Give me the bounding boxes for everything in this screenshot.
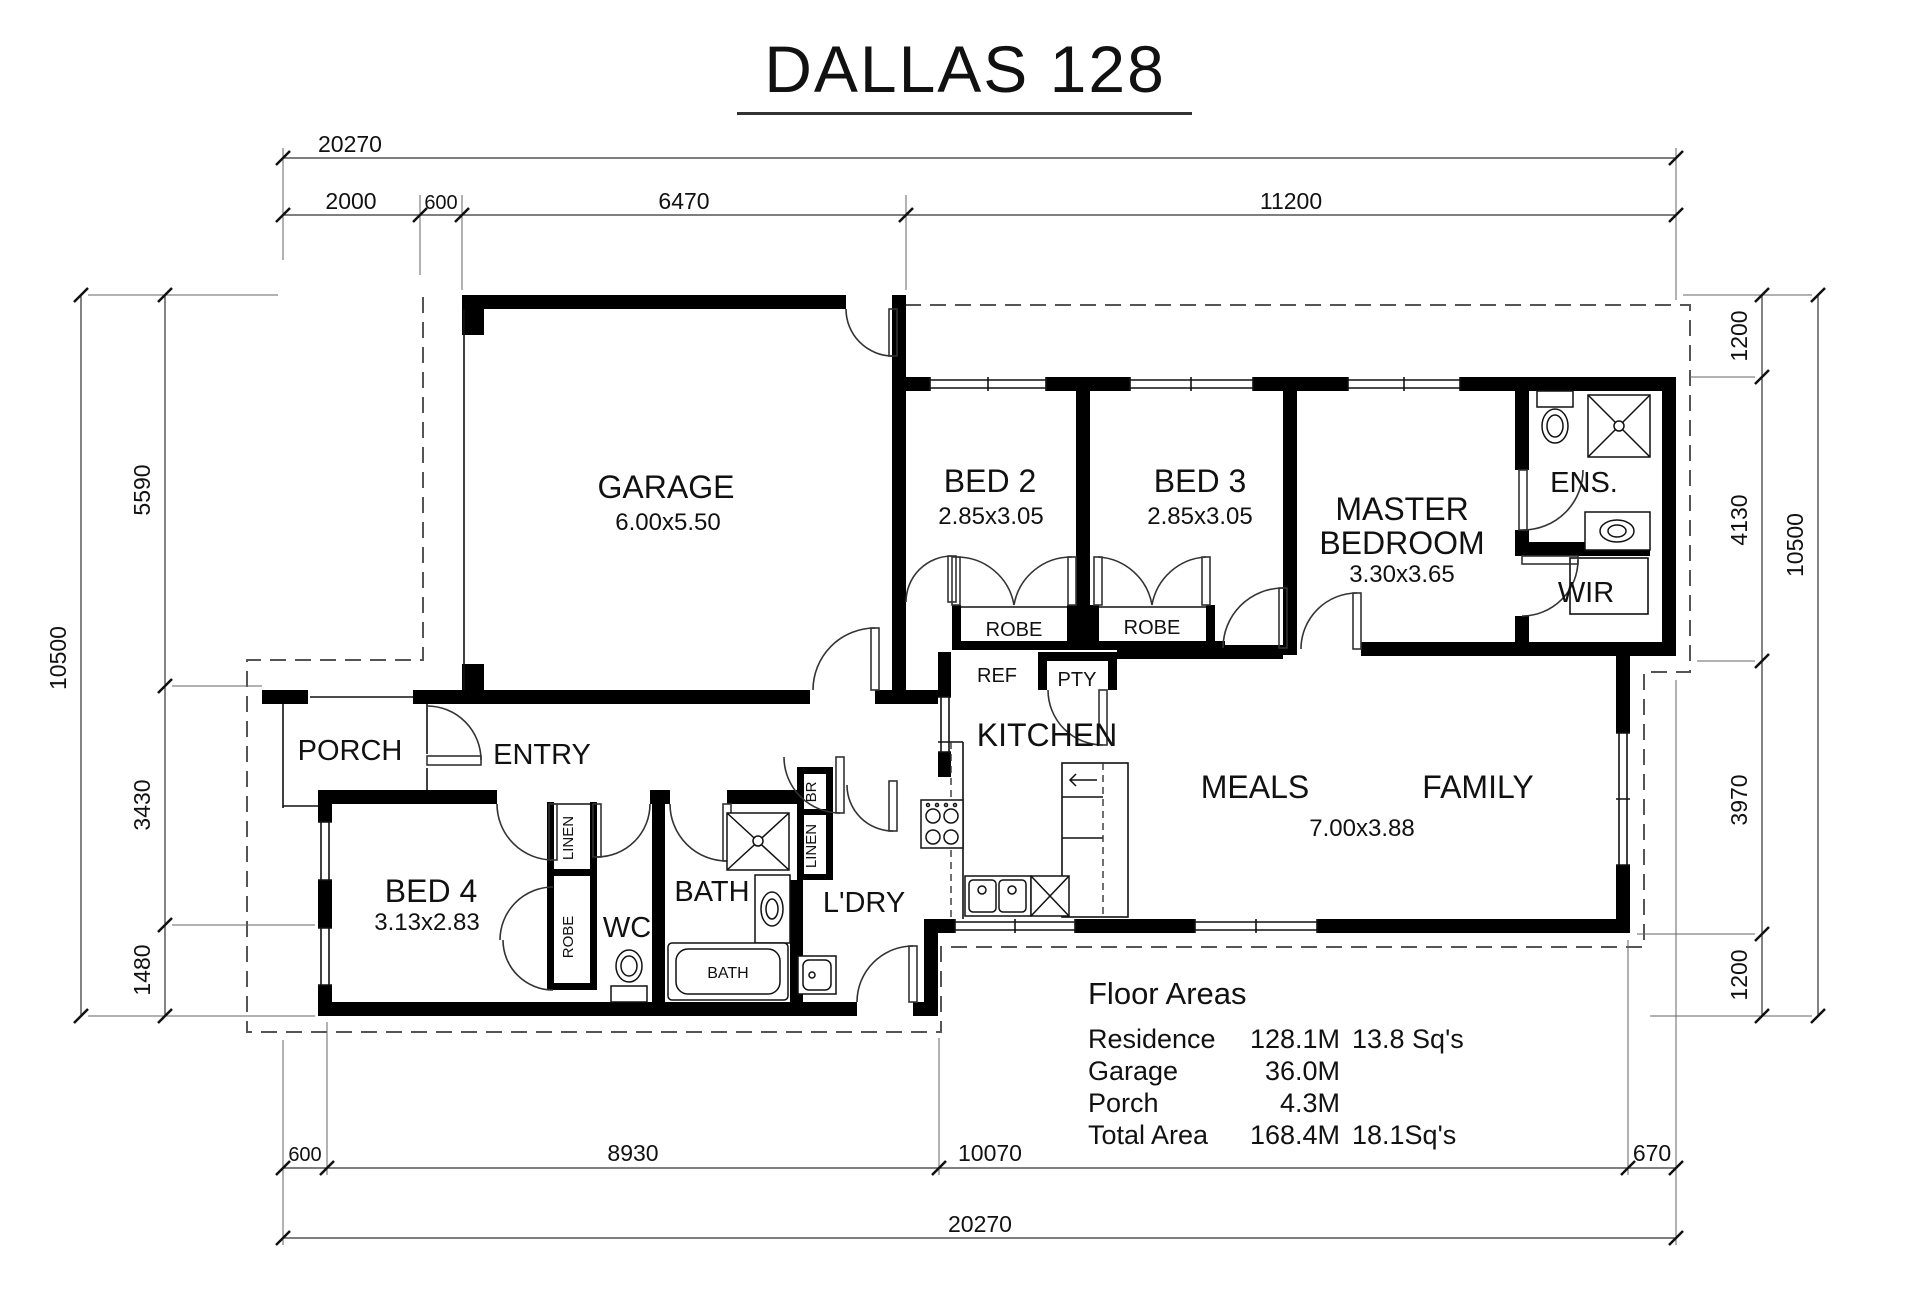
- dim-top-seg-6470: 6470: [658, 188, 709, 214]
- dimension-labels: 20270 2000 600 6470 11200 600 8930 10070…: [45, 131, 1808, 1237]
- kitchen-sink-icon: [965, 876, 1069, 916]
- room-label-kitchen: KITCHEN: [977, 717, 1117, 753]
- dim-bottom-seg-8930: 8930: [607, 1140, 658, 1166]
- floor-areas-row0-extra: 13.8 Sq's: [1352, 1024, 1464, 1054]
- label-robe-bed2: ROBE: [986, 619, 1043, 641]
- dim-right-seg-1200b: 1200: [1726, 949, 1752, 1000]
- ens-vanity-icon: [1585, 512, 1650, 550]
- dim-bottom-seg-10070: 10070: [958, 1140, 1022, 1166]
- label-robe-bed4: ROBE: [560, 916, 577, 959]
- label-robe-bed3: ROBE: [1124, 617, 1181, 639]
- room-label-meals: MEALS: [1201, 769, 1309, 805]
- floor-areas-row3-value: 168.4M: [1250, 1120, 1340, 1150]
- cooktop-icon: [921, 800, 963, 848]
- bath-vanity-icon: [755, 875, 790, 943]
- thin-outlines: [283, 309, 1648, 919]
- dim-right-seg-1200a: 1200: [1726, 310, 1752, 361]
- title-underline: [737, 112, 1192, 115]
- dim-right-seg-4130: 4130: [1726, 494, 1752, 545]
- dim-left-seg-1480: 1480: [129, 944, 155, 995]
- drawing-title: DALLAS 128: [764, 32, 1166, 106]
- floor-areas-row3-label: Total Area: [1088, 1120, 1209, 1150]
- floor-areas-row1-value: 36.0M: [1265, 1056, 1340, 1086]
- room-label-porch: PORCH: [298, 735, 403, 767]
- ens-shower-icon: [1588, 395, 1650, 457]
- dim-left-seg-5590: 5590: [129, 464, 155, 515]
- room-size-garage: 6.00x5.50: [615, 509, 720, 536]
- dim-bottom-seg-670: 670: [1633, 1140, 1671, 1166]
- wc-toilet-icon: [611, 950, 647, 1002]
- room-label-garage: GARAGE: [598, 469, 735, 505]
- dim-top-seg-600: 600: [424, 192, 457, 214]
- floor-areas-row2-value: 4.3M: [1280, 1088, 1340, 1118]
- dim-right-seg-3970: 3970: [1726, 774, 1752, 825]
- label-pty: PTY: [1058, 669, 1097, 691]
- dim-left-seg-3430: 3430: [129, 779, 155, 830]
- dim-bottom-seg-600: 600: [288, 1144, 321, 1166]
- floor-areas-row2-label: Porch: [1088, 1088, 1159, 1118]
- label-linen-ldry: LINEN: [803, 824, 820, 868]
- room-label-bed3: BED 3: [1154, 463, 1246, 499]
- label-br: BR: [803, 781, 820, 802]
- dim-left-overall: 10500: [45, 626, 71, 690]
- room-size-bed3: 2.85x3.05: [1147, 503, 1252, 530]
- floor-areas: Floor Areas Residence 128.1M 13.8 Sq's G…: [1088, 976, 1464, 1150]
- floor-areas-row0-label: Residence: [1088, 1024, 1216, 1054]
- dim-bottom-overall: 20270: [948, 1211, 1012, 1237]
- dim-top-seg-11200: 11200: [1260, 188, 1322, 214]
- room-label-family: FAMILY: [1422, 769, 1533, 805]
- floor-areas-row0-value: 128.1M: [1250, 1024, 1340, 1054]
- floor-areas-row1-label: Garage: [1088, 1056, 1178, 1086]
- floor-areas-heading: Floor Areas: [1088, 976, 1247, 1011]
- room-label-ldry: L'DRY: [823, 887, 905, 919]
- label-ref: REF: [977, 665, 1017, 687]
- room-label-entry: ENTRY: [493, 739, 591, 771]
- label-bathtub: BATH: [707, 965, 748, 982]
- room-label-master-2: BEDROOM: [1319, 525, 1484, 561]
- label-linen-hall: LINEN: [560, 816, 577, 860]
- room-label-bed4: BED 4: [385, 873, 477, 909]
- room-label-bath: BATH: [674, 876, 749, 908]
- room-label-wir: WIR: [1558, 577, 1614, 609]
- ens-toilet-icon: [1537, 391, 1573, 443]
- room-label-master-1: MASTER: [1335, 491, 1468, 527]
- floor-areas-row3-extra: 18.1Sq's: [1352, 1120, 1456, 1150]
- dishwasher-arrow-icon: [1070, 774, 1097, 786]
- room-label-bed2: BED 2: [944, 463, 1036, 499]
- floor-plan-canvas: DALLAS 128: [0, 0, 1920, 1311]
- laundry-tub-icon: [798, 956, 836, 994]
- bath-shower-icon: [727, 813, 789, 870]
- room-size-bed4: 3.13x2.83: [374, 909, 479, 936]
- dim-right-overall: 10500: [1782, 513, 1808, 577]
- room-size-meals-family: 7.00x3.88: [1309, 815, 1414, 842]
- dim-top-seg-2000: 2000: [325, 188, 376, 214]
- room-size-bed2: 2.85x3.05: [938, 503, 1043, 530]
- room-label-ens: ENS.: [1550, 467, 1618, 499]
- room-label-wc: WC: [603, 912, 651, 944]
- dim-top-overall: 20270: [318, 131, 382, 157]
- room-size-master: 3.30x3.65: [1349, 561, 1454, 588]
